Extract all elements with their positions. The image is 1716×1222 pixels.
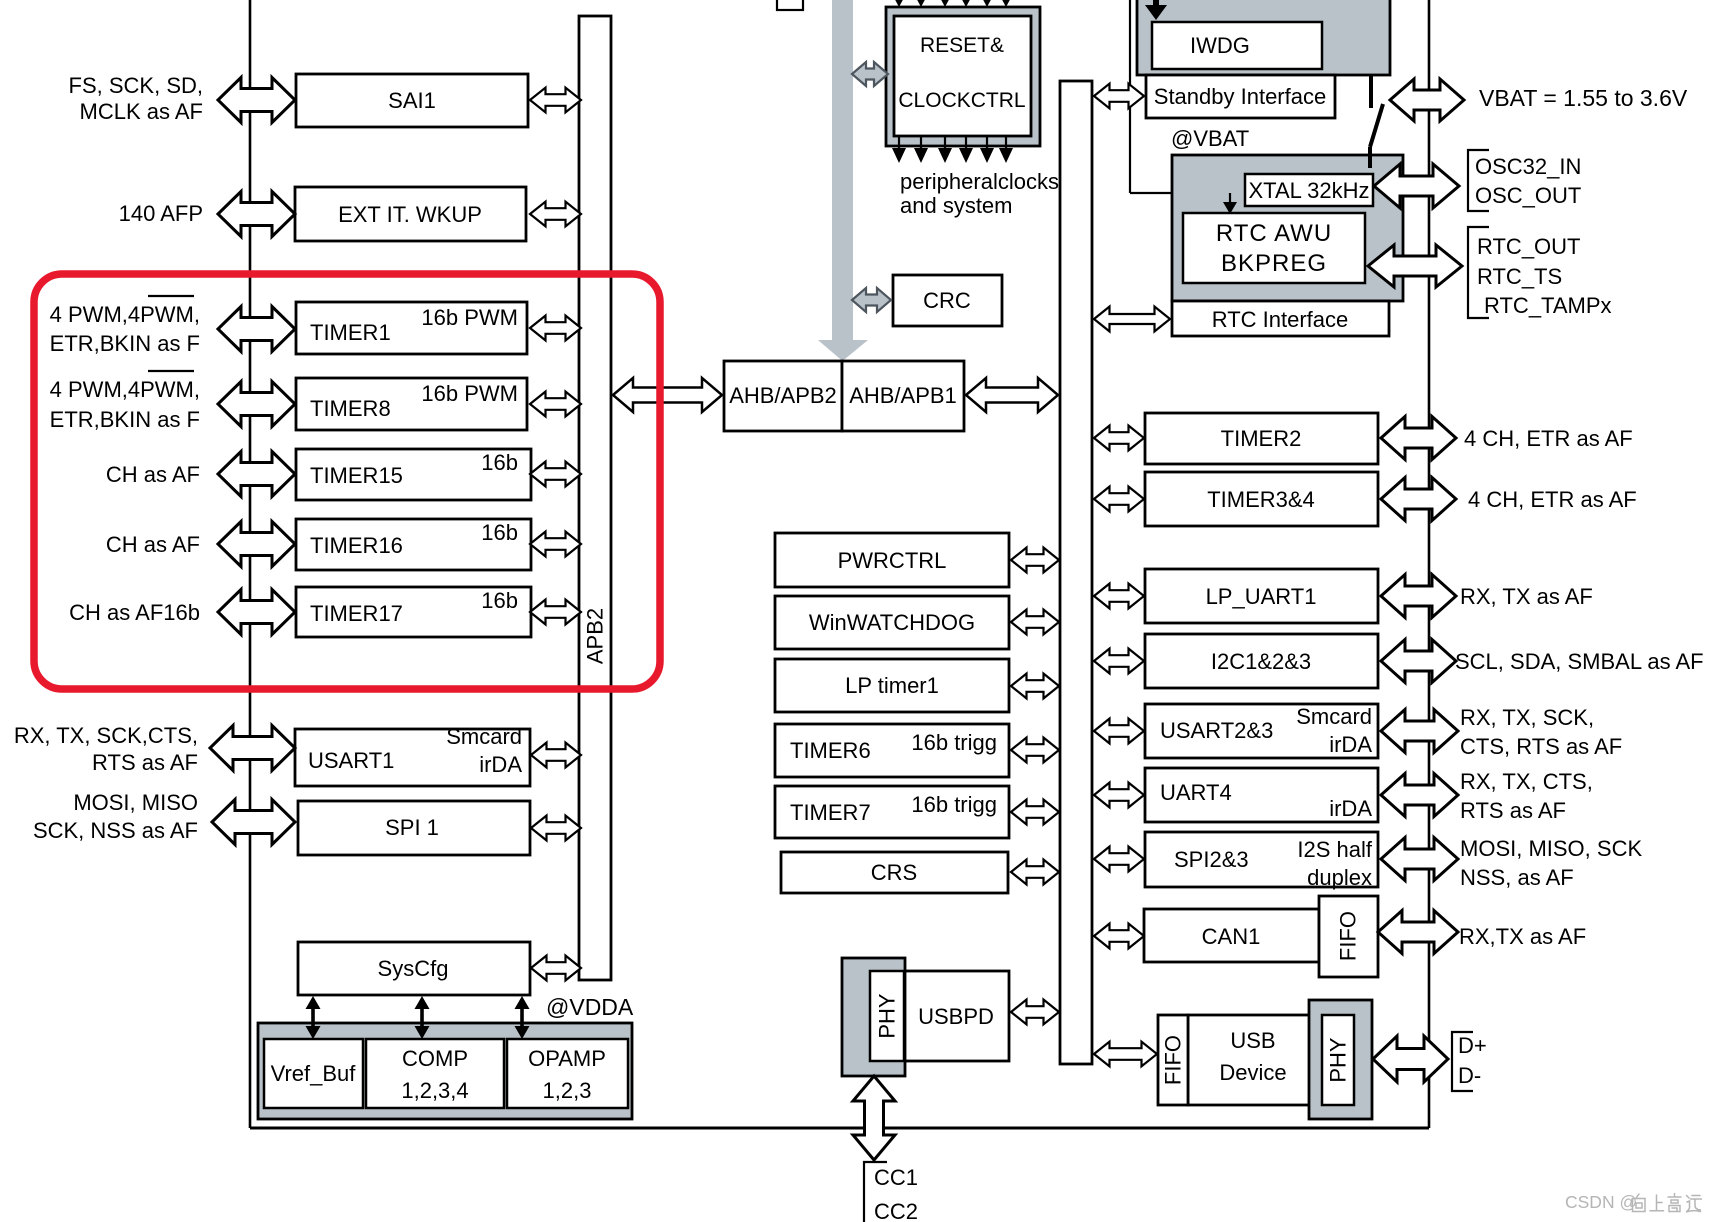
- svg-text:16b PWM: 16b PWM: [421, 305, 518, 330]
- svg-text:4 PWM,4PWM,: 4 PWM,4PWM,: [50, 302, 200, 327]
- svg-text:CLOCKCTRL: CLOCKCTRL: [898, 89, 1025, 112]
- svg-text:CTS, RTS as AF: CTS, RTS as AF: [1460, 734, 1622, 759]
- svg-text:CC2: CC2: [874, 1199, 918, 1222]
- svg-text:16b trigg: 16b trigg: [911, 792, 997, 817]
- svg-text:RX, TX, SCK,CTS,: RX, TX, SCK,CTS,: [14, 723, 198, 748]
- svg-text:D-: D-: [1458, 1063, 1481, 1088]
- svg-text:1,2,3: 1,2,3: [543, 1078, 592, 1103]
- svg-text:TIMER2: TIMER2: [1221, 426, 1302, 451]
- svg-text:16b: 16b: [481, 450, 518, 475]
- svg-text:RX,TX as AF: RX,TX as AF: [1459, 924, 1586, 949]
- svg-text:16b trigg: 16b trigg: [911, 730, 997, 755]
- svg-text:duplex: duplex: [1307, 865, 1372, 890]
- svg-text:BKPREG: BKPREG: [1221, 250, 1327, 277]
- svg-text:RTC_TS: RTC_TS: [1477, 264, 1562, 289]
- svg-text:USBPD: USBPD: [918, 1004, 994, 1029]
- svg-text:RTC_TAMPx: RTC_TAMPx: [1484, 293, 1612, 318]
- svg-text:OSC32_IN: OSC32_IN: [1475, 154, 1581, 179]
- svg-text:USART1: USART1: [308, 748, 394, 773]
- svg-text:CRS: CRS: [871, 860, 917, 885]
- svg-text:MOSI, MISO, SCK: MOSI, MISO, SCK: [1460, 836, 1642, 861]
- svg-text:RTS as AF: RTS as AF: [1460, 798, 1566, 823]
- svg-text:SPI2&3: SPI2&3: [1174, 847, 1249, 872]
- svg-text:Device: Device: [1219, 1060, 1286, 1085]
- svg-text:SCL, SDA, SMBAL as AF: SCL, SDA, SMBAL as AF: [1455, 649, 1704, 674]
- svg-text:EXT IT. WKUP: EXT IT. WKUP: [338, 202, 482, 227]
- svg-text:USART2&3: USART2&3: [1160, 718, 1273, 743]
- svg-text:16b: 16b: [481, 588, 518, 613]
- svg-text:Smcard: Smcard: [446, 724, 522, 749]
- svg-text:ETR,BKIN as F: ETR,BKIN as F: [50, 331, 200, 356]
- svg-text:RESET&: RESET&: [920, 34, 1004, 57]
- svg-text:TIMER1: TIMER1: [310, 320, 391, 345]
- svg-text:USB: USB: [1230, 1028, 1275, 1053]
- svg-text:16b: 16b: [481, 520, 518, 545]
- svg-text:RTC AWU: RTC AWU: [1216, 220, 1332, 247]
- svg-text:SysCfg: SysCfg: [378, 956, 449, 981]
- svg-text:4 PWM,4PWM,: 4 PWM,4PWM,: [50, 377, 200, 402]
- svg-text:SCK, NSS as AF: SCK, NSS as AF: [33, 818, 198, 843]
- svg-text:TIMER3&4: TIMER3&4: [1207, 487, 1315, 512]
- svg-text:irDA: irDA: [1329, 732, 1372, 757]
- svg-text:UART4: UART4: [1160, 780, 1232, 805]
- svg-text:TIMER8: TIMER8: [310, 396, 391, 421]
- svg-text:SPI 1: SPI 1: [385, 815, 439, 840]
- svg-text:AHB/APB1: AHB/APB1: [849, 383, 957, 408]
- svg-text:CH as AF16b: CH as AF16b: [69, 600, 200, 625]
- svg-text:CC1: CC1: [874, 1165, 918, 1190]
- svg-text:IWDG: IWDG: [1190, 33, 1250, 58]
- svg-text:TIMER16: TIMER16: [310, 533, 403, 558]
- svg-text:TIMER7: TIMER7: [790, 800, 871, 825]
- svg-text:@VDDA: @VDDA: [546, 994, 634, 1020]
- svg-text:FIFO: FIFO: [1161, 1035, 1186, 1085]
- svg-text:irDA: irDA: [1329, 796, 1372, 821]
- svg-text:XTAL 32kHz: XTAL 32kHz: [1248, 178, 1369, 203]
- svg-text:140 AFP: 140 AFP: [119, 201, 203, 226]
- svg-text:TIMER17: TIMER17: [310, 601, 403, 626]
- svg-text:SAI1: SAI1: [388, 88, 436, 113]
- svg-text:D+: D+: [1458, 1033, 1487, 1058]
- svg-text:NSS, as AF: NSS, as AF: [1460, 865, 1574, 890]
- svg-text:1,2,3,4: 1,2,3,4: [401, 1078, 468, 1103]
- svg-text:Standby Interface: Standby Interface: [1154, 84, 1326, 109]
- svg-text:I2S half: I2S half: [1297, 837, 1372, 862]
- svg-text:RTC Interface: RTC Interface: [1212, 307, 1349, 332]
- svg-text:TIMER15: TIMER15: [310, 463, 403, 488]
- svg-text:peripheralclocks: peripheralclocks: [900, 169, 1059, 194]
- svg-text:CAN1: CAN1: [1202, 924, 1261, 949]
- svg-text:CRC: CRC: [923, 288, 971, 313]
- svg-text:CH as AF: CH as AF: [106, 532, 200, 557]
- svg-text:MOSI, MISO: MOSI, MISO: [73, 790, 198, 815]
- svg-text:VBAT = 1.55 to 3.6V: VBAT = 1.55 to 3.6V: [1479, 85, 1688, 111]
- svg-text:COMP: COMP: [402, 1046, 468, 1071]
- svg-text:@VBAT: @VBAT: [1171, 126, 1249, 151]
- svg-text:TIMER6: TIMER6: [790, 738, 871, 763]
- svg-text:RTC_OUT: RTC_OUT: [1477, 234, 1581, 259]
- svg-text:APB2: APB2: [583, 608, 608, 664]
- svg-text:CSDN @: CSDN @: [1565, 1192, 1637, 1212]
- svg-text:OPAMP: OPAMP: [528, 1046, 606, 1071]
- svg-text:ETR,BKIN as F: ETR,BKIN as F: [50, 407, 200, 432]
- svg-text:WinWATCHDOG: WinWATCHDOG: [809, 610, 975, 635]
- svg-text:MCLK as AF: MCLK as AF: [80, 99, 203, 124]
- svg-text:Smcard: Smcard: [1296, 704, 1372, 729]
- svg-text:4 CH, ETR as AF: 4 CH, ETR as AF: [1468, 487, 1637, 512]
- svg-text:I2C1&2&3: I2C1&2&3: [1211, 649, 1311, 674]
- svg-text:CH as AF: CH as AF: [106, 462, 200, 487]
- svg-text:PHY: PHY: [875, 993, 900, 1039]
- svg-text:irDA: irDA: [479, 752, 522, 777]
- svg-text:16b PWM: 16b PWM: [421, 381, 518, 406]
- svg-text:RX, TX, CTS,: RX, TX, CTS,: [1460, 769, 1593, 794]
- svg-text:FIFO: FIFO: [1336, 911, 1361, 961]
- svg-text:and system: and system: [900, 193, 1013, 218]
- svg-text:4 CH, ETR as AF: 4 CH, ETR as AF: [1464, 426, 1633, 451]
- svg-text:PWRCTRL: PWRCTRL: [838, 548, 947, 573]
- svg-text:Vref_Buf: Vref_Buf: [271, 1061, 357, 1086]
- svg-text:LP_UART1: LP_UART1: [1206, 584, 1317, 609]
- svg-text:RTS as AF: RTS as AF: [92, 750, 198, 775]
- svg-text:FS, SCK, SD,: FS, SCK, SD,: [69, 73, 203, 98]
- svg-text:RX, TX, SCK,: RX, TX, SCK,: [1460, 705, 1594, 730]
- svg-text:LP timer1: LP timer1: [845, 673, 939, 698]
- svg-text:OSC_OUT: OSC_OUT: [1475, 183, 1581, 208]
- svg-text:RX, TX as AF: RX, TX as AF: [1460, 584, 1593, 609]
- svg-text:AHB/APB2: AHB/APB2: [729, 383, 837, 408]
- svg-text:PHY: PHY: [1326, 1037, 1351, 1083]
